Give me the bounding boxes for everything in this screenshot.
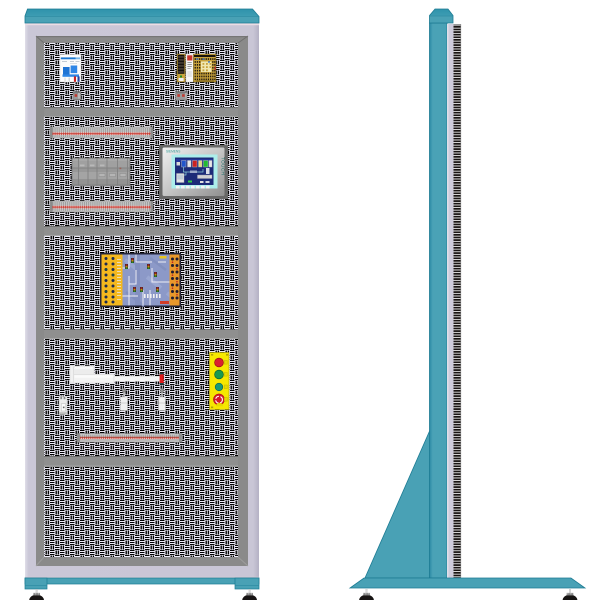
svg-text:TOUCH: TOUCH (221, 157, 226, 175)
svg-text:SIEMENS: SIEMENS (166, 150, 180, 154)
